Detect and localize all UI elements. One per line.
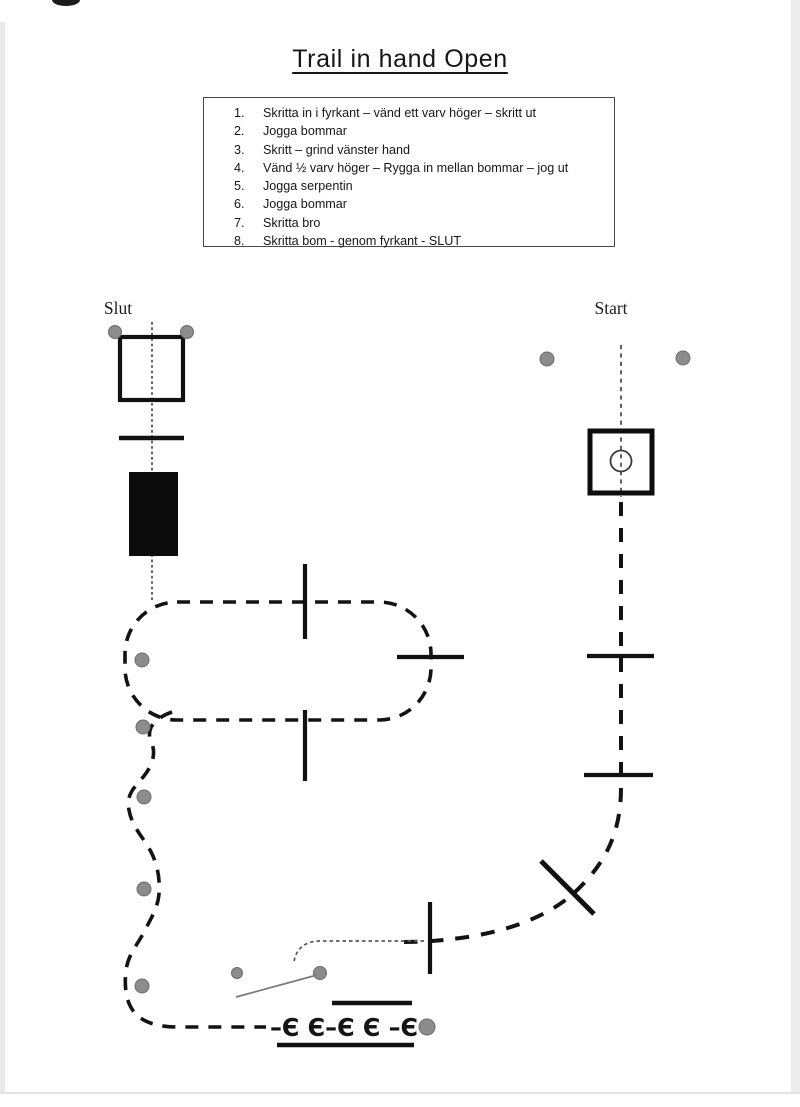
gate-bar <box>236 975 317 997</box>
loop-dashed-track <box>125 602 431 720</box>
backing-dotted-track <box>294 941 424 962</box>
marker-dot <box>137 882 151 896</box>
ground-poles: –Є Є–Є Є –Є <box>270 1003 435 1045</box>
gate-post-dot <box>314 967 327 980</box>
marker-dot <box>135 979 149 993</box>
start-circle-marker <box>611 451 632 472</box>
pole-ends-glyph-row: –Є Є–Є Є –Є <box>270 1013 418 1042</box>
photographed-document-page: Trail in hand Open 1. Skritta in i fyrka… <box>0 0 800 1107</box>
finish-square <box>120 337 183 400</box>
marker-dot <box>135 653 149 667</box>
page-edge-right <box>791 0 800 1093</box>
start-dashed-track <box>404 502 621 942</box>
finish-area: Slut <box>104 298 194 601</box>
gate-post-dot <box>232 968 243 979</box>
diagonal-pole <box>541 861 594 914</box>
serpentine-dashed-track <box>125 712 266 1027</box>
finish-label: Slut <box>104 298 132 318</box>
marker-dot <box>419 1019 435 1035</box>
marker-dot <box>540 352 554 366</box>
pole-loop <box>125 564 464 781</box>
course-diagram: Slut Start <box>0 0 800 1107</box>
page-edge-left <box>0 22 5 1093</box>
start-area: Start <box>404 298 690 974</box>
gate <box>232 967 327 998</box>
backing-lane <box>294 941 424 962</box>
marker-dot <box>181 326 194 339</box>
marker-dot <box>137 790 151 804</box>
marker-dot <box>676 351 690 365</box>
photo-artifacts <box>0 0 800 1093</box>
camera-hole-blob <box>52 0 80 6</box>
marker-dot <box>109 326 122 339</box>
start-label: Start <box>594 298 627 318</box>
serpentine <box>125 653 266 1027</box>
marker-dot <box>136 720 150 734</box>
bridge-obstacle <box>129 472 178 556</box>
